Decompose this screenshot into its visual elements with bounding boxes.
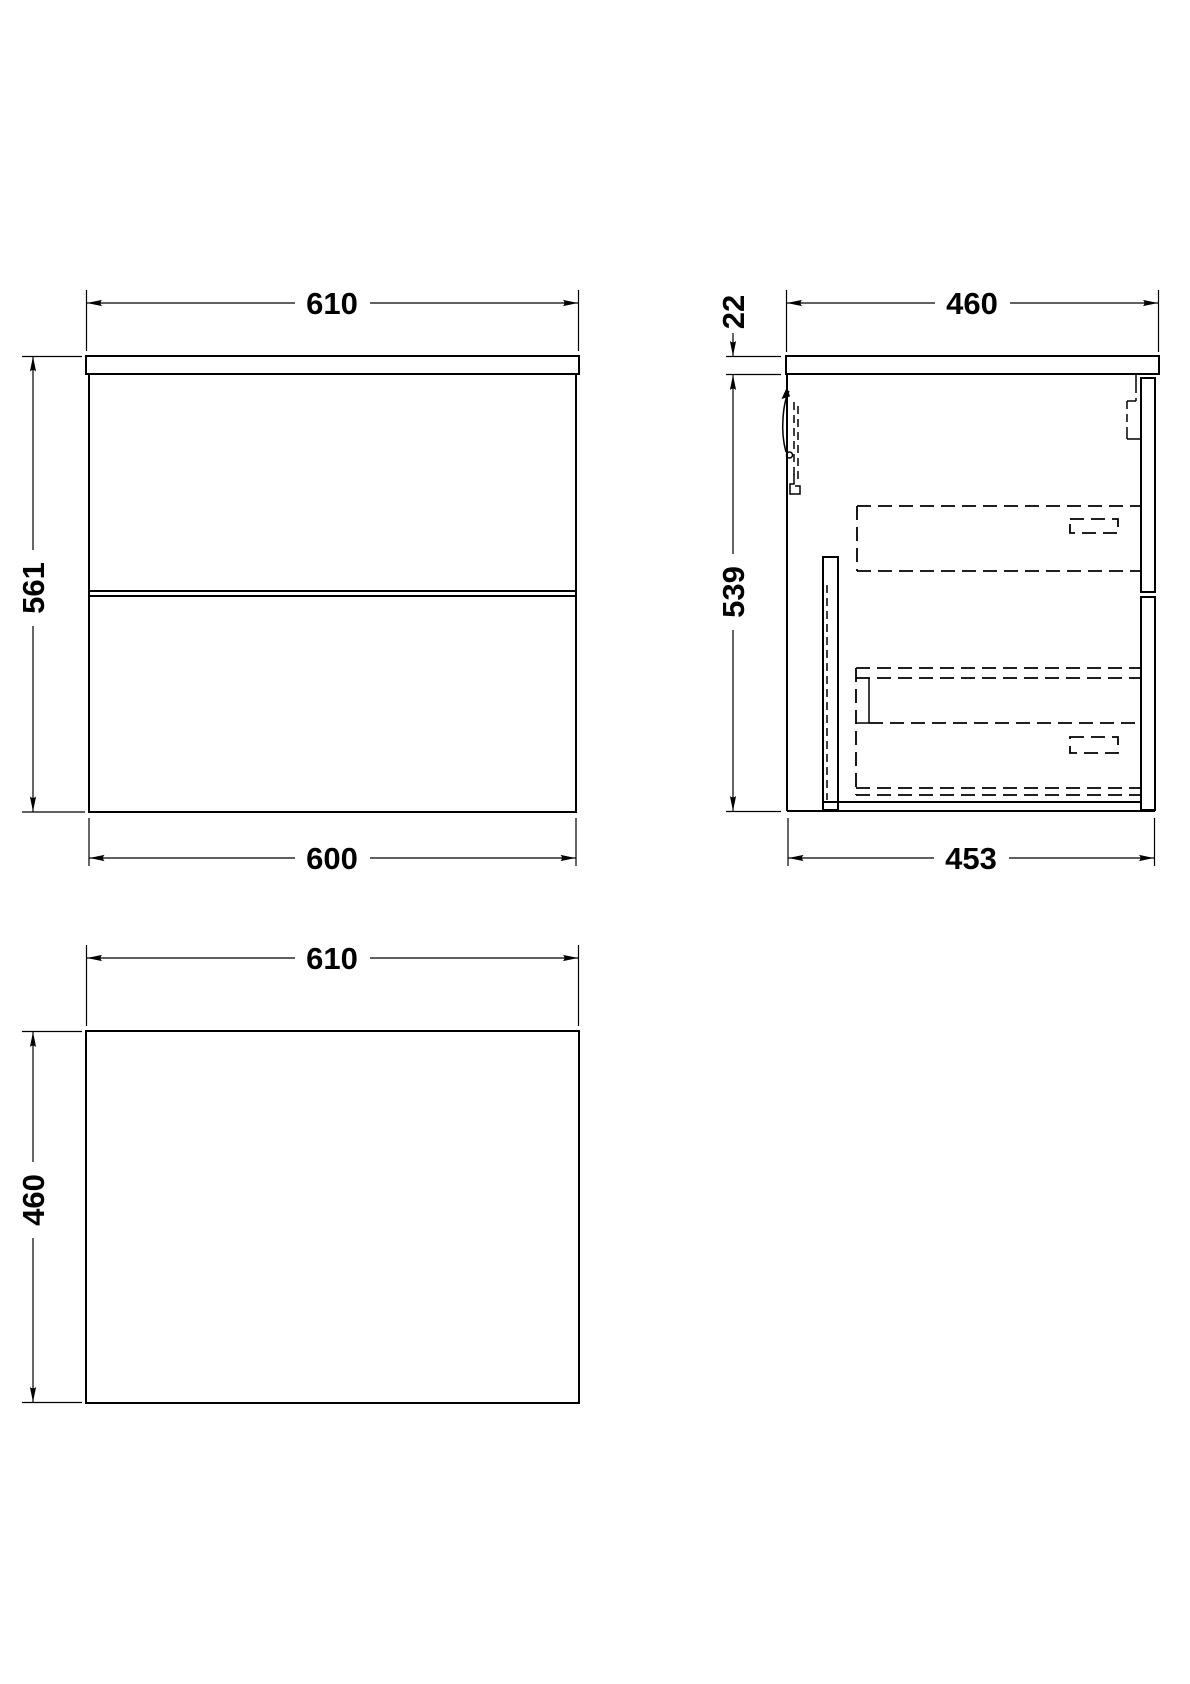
bracket-hook-tip (782, 387, 791, 399)
side-dim-top-depth: 460 (787, 286, 1159, 352)
plan-view: 610 460 (16, 941, 579, 1403)
side-view: 460 22 539 453 (716, 286, 1159, 876)
side-worktop (786, 356, 1159, 374)
side-lower-drawer-front (1141, 597, 1155, 810)
plan-dim-width: 610 (87, 941, 579, 1026)
side-dim-worktop-thickness: 22 (716, 295, 781, 375)
plan-worktop-outline (86, 1031, 579, 1403)
dim-label-side-bottom-depth: 453 (945, 841, 997, 876)
front-view: 610 561 600 (16, 286, 579, 876)
dim-label-plan-width: 610 (306, 941, 358, 976)
lower-drawer-runner (1070, 737, 1118, 753)
dim-label-side-worktop-thickness: 22 (716, 295, 751, 329)
dim-label-plan-depth: 460 (16, 1174, 51, 1226)
front-cabinet-body (89, 374, 576, 812)
dim-label-front-bottom-width: 600 (306, 841, 358, 876)
dim-label-front-top-width: 610 (306, 286, 358, 321)
side-rear-upright (823, 557, 838, 810)
technical-drawing: 610 561 600 (0, 0, 1190, 1684)
front-worktop (86, 356, 579, 374)
side-upper-drawer-front (1141, 378, 1155, 592)
side-upper-drawer-box (857, 506, 1141, 571)
front-dim-height: 561 (16, 357, 85, 813)
dim-label-side-cabinet-height: 539 (716, 566, 751, 618)
side-wall-bracket (782, 387, 801, 494)
side-lower-drawer-box (856, 668, 1141, 795)
front-dim-bottom-width: 600 (89, 818, 576, 876)
dim-label-front-height: 561 (16, 562, 51, 614)
side-top-rail-notch (1127, 375, 1141, 439)
technical-drawing-page: 610 561 600 (0, 0, 1190, 1684)
upper-drawer-runner (1070, 519, 1118, 533)
dim-label-side-top-depth: 460 (946, 286, 998, 321)
side-dim-bottom-depth: 453 (788, 818, 1155, 876)
front-dim-top-width: 610 (87, 286, 579, 351)
side-dim-cabinet-height: 539 (716, 375, 781, 812)
plan-dim-depth: 460 (16, 1032, 82, 1403)
